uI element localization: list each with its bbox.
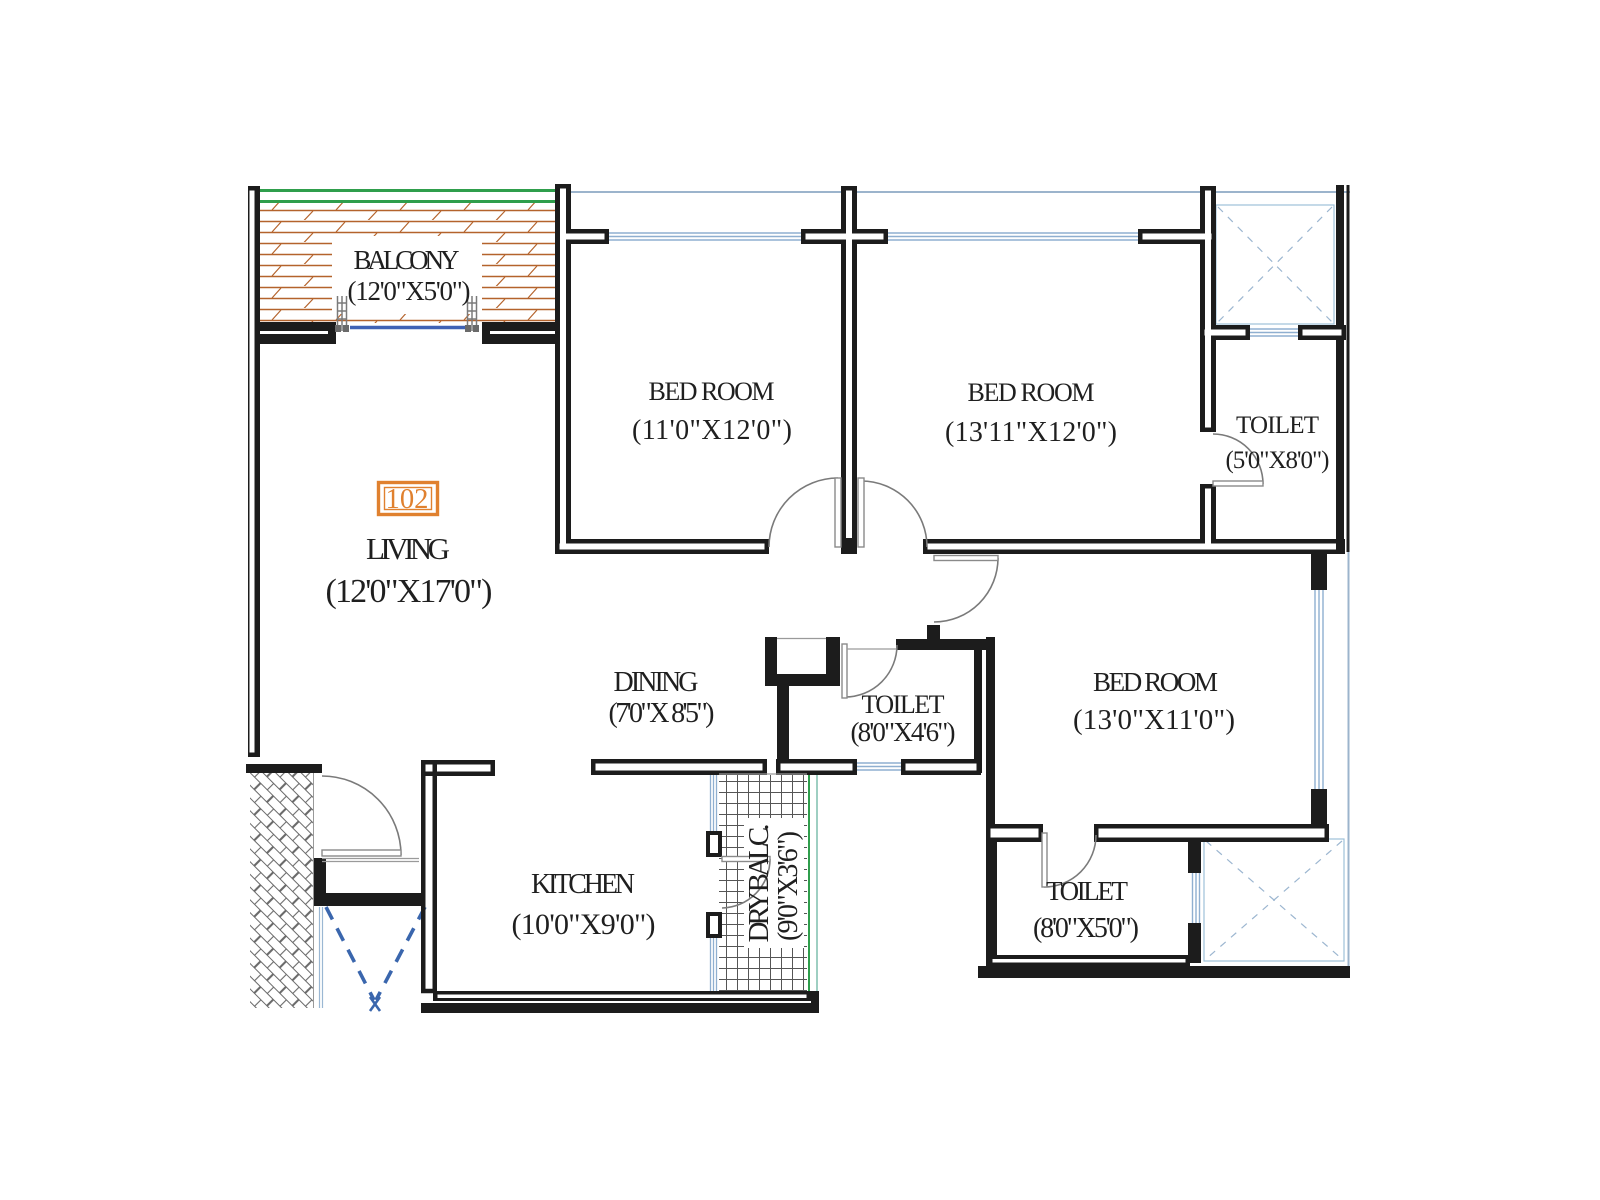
svg-text:LIVING: LIVING	[366, 531, 450, 566]
svg-text:(10'0"X9'0"): (10'0"X9'0")	[512, 908, 656, 941]
svg-text:(13'11"X12'0"): (13'11"X12'0")	[945, 417, 1117, 448]
svg-text:DINING: DINING	[614, 667, 699, 698]
svg-text:(12'0"X17'0"): (12'0"X17'0")	[326, 573, 493, 610]
svg-text:BED ROOM: BED ROOM	[649, 377, 775, 406]
svg-text:(8'0"X4'6"): (8'0"X4'6")	[851, 717, 956, 747]
svg-text:KITCHEN: KITCHEN	[531, 869, 635, 900]
svg-text:(8'0"X5'0"): (8'0"X5'0")	[1033, 913, 1139, 944]
svg-text:BED ROOM: BED ROOM	[968, 378, 1095, 407]
svg-text:(5'0"X8'0"): (5'0"X8'0")	[1226, 447, 1330, 474]
svg-text:(13'0"X11'0"): (13'0"X11'0")	[1073, 704, 1235, 736]
svg-text:BALCONY: BALCONY	[354, 245, 460, 275]
svg-text:102: 102	[386, 483, 429, 515]
svg-text:(9'0"X3'6"): (9'0"X3'6")	[773, 831, 804, 941]
svg-text:DRY BALC.: DRY BALC.	[743, 824, 775, 943]
svg-text:(7'0"X 8'5"): (7'0"X 8'5")	[609, 698, 715, 729]
svg-text:(11'0"X12'0"): (11'0"X12'0")	[632, 415, 792, 446]
svg-text:(12'0"X5'0"): (12'0"X5'0")	[348, 276, 471, 306]
svg-text:TOILET: TOILET	[862, 690, 945, 719]
svg-text:TOILET: TOILET	[1236, 412, 1319, 439]
svg-text:TOILET: TOILET	[1046, 876, 1129, 906]
svg-text:BED ROOM: BED ROOM	[1093, 667, 1218, 697]
